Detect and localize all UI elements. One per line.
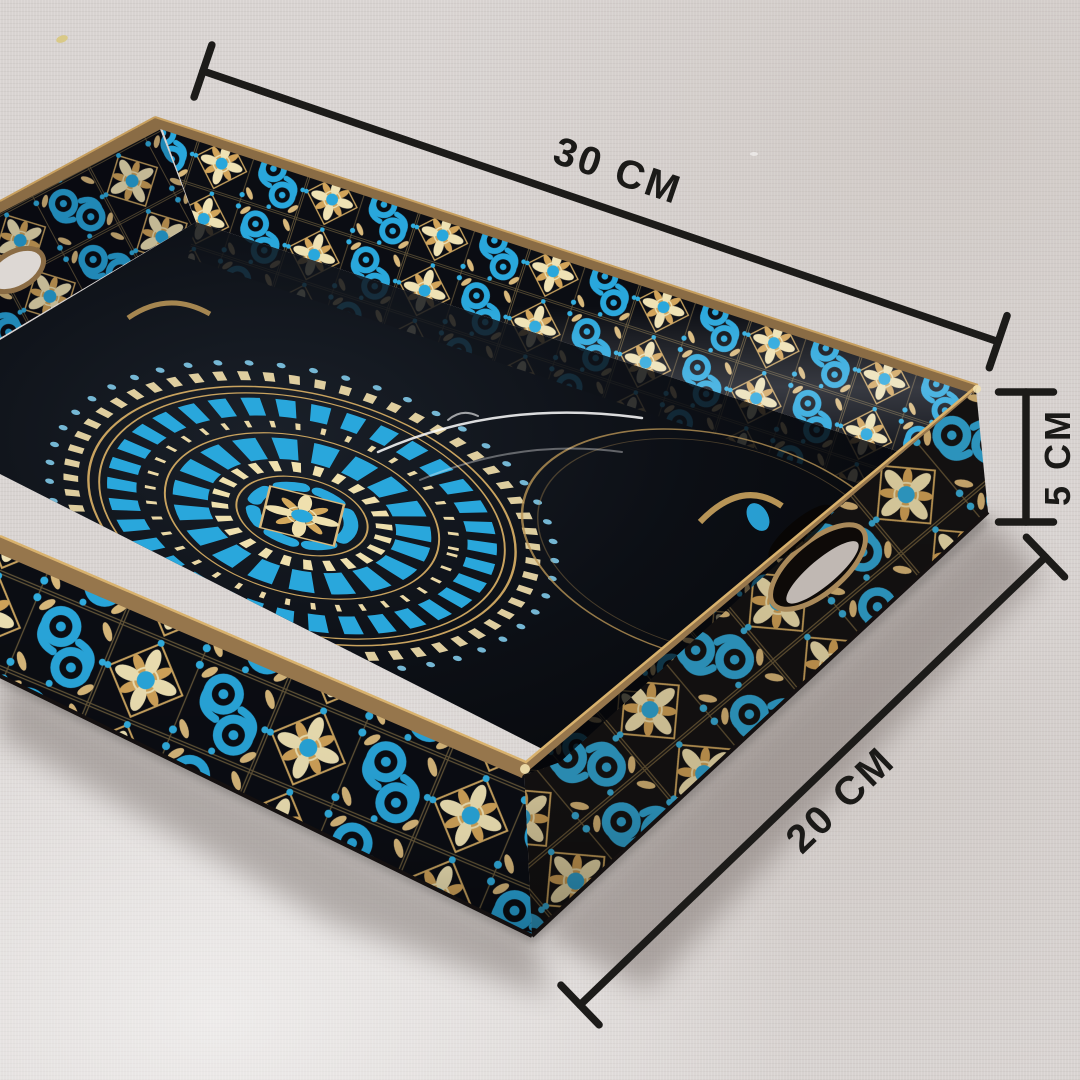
rim-corner-glint — [520, 764, 530, 774]
rim-back-glint — [973, 385, 981, 393]
dimension-height-5cm: 5 CM — [999, 392, 1079, 522]
product-scene: 30 CM 5 CM 20 CM — [0, 0, 1080, 1080]
fabric-speck — [55, 34, 69, 45]
product-photo-stage: 30 CM 5 CM 20 CM — [0, 0, 1080, 1080]
height-dimension-label: 5 CM — [1037, 408, 1078, 506]
fabric-lint — [750, 152, 758, 156]
width-dimension-label: 30 CM — [548, 129, 688, 213]
